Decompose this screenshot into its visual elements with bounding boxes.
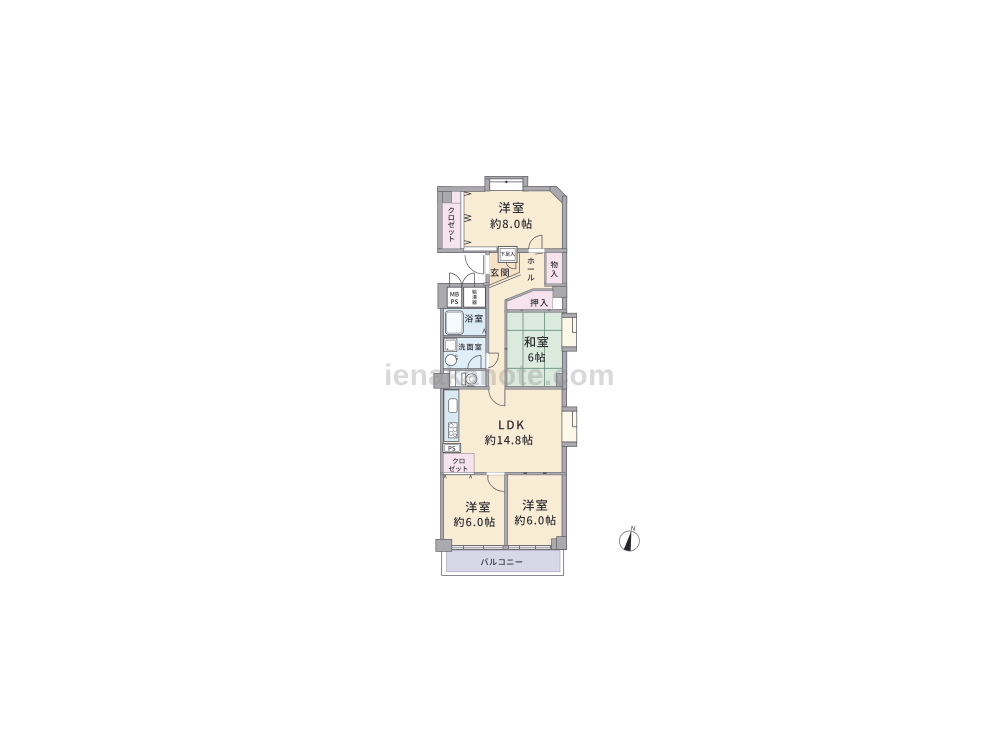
svg-text:N: N <box>631 526 636 533</box>
svg-text:ienakanote.com: ienakanote.com <box>384 359 615 392</box>
